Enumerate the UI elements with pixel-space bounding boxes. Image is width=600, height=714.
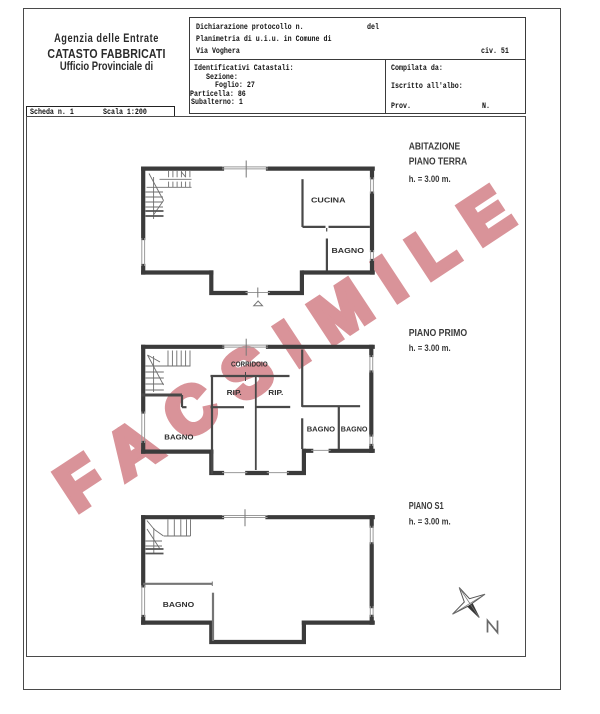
svg-text:h. = 3.00 m.: h. = 3.00 m. [409,174,451,184]
svg-text:FACSIMILE: FACSIMILE [43,160,543,525]
svg-text:BAGNO: BAGNO [341,425,368,434]
svg-text:RIP.: RIP. [227,388,242,397]
svg-text:BAGNO: BAGNO [332,246,365,255]
svg-text:CUCINA: CUCINA [311,196,346,205]
svg-text:PIANO PRIMO: PIANO PRIMO [409,328,468,339]
svg-text:PIANO TERRA: PIANO TERRA [409,157,468,168]
svg-text:BAGNO: BAGNO [163,600,195,609]
svg-text:h. = 3.00 m.: h. = 3.00 m. [409,343,451,353]
svg-text:BAGNO: BAGNO [164,433,193,442]
svg-text:PIANO S1: PIANO S1 [409,501,444,512]
svg-text:RIP.: RIP. [268,388,283,397]
svg-text:BAGNO: BAGNO [307,425,335,434]
svg-text:h. = 3.00 m.: h. = 3.00 m. [409,516,451,526]
svg-text:ABITAZIONE: ABITAZIONE [409,142,461,153]
svg-text:CORRIDOIO: CORRIDOIO [231,360,268,369]
